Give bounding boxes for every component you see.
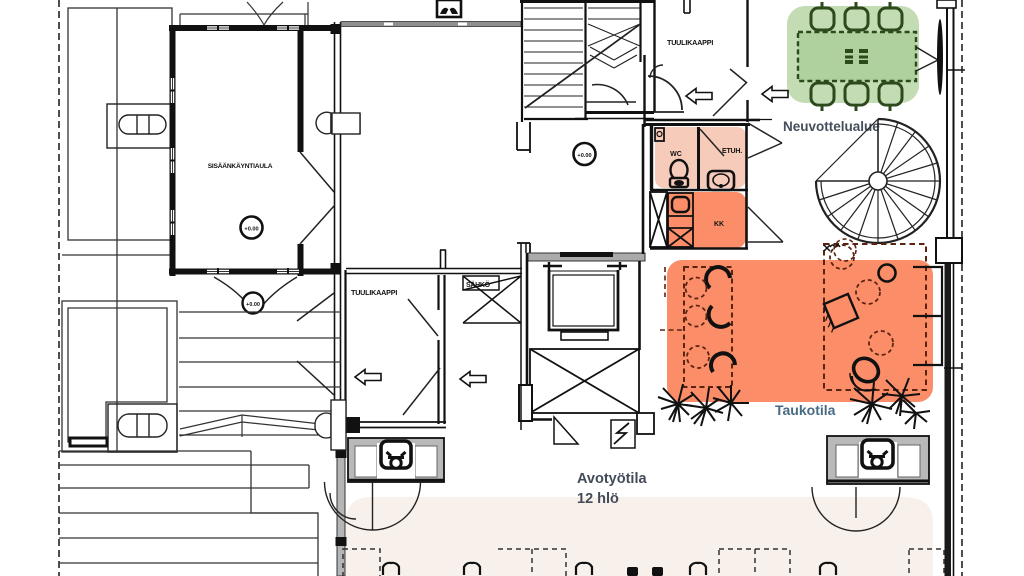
svg-text:+0.00: +0.00 (246, 302, 260, 308)
svg-text:12 hlö: 12 hlö (577, 491, 619, 507)
svg-text:TUULIKAAPPI: TUULIKAAPPI (667, 38, 713, 47)
svg-text:TUULIKAAPPI: TUULIKAAPPI (351, 288, 397, 297)
svg-text:ETUH.: ETUH. (722, 148, 742, 155)
svg-text:KK: KK (714, 221, 724, 228)
svg-text:Avotyötila: Avotyötila (577, 471, 647, 487)
svg-text:SISÄÄNKÄYNTIAULA: SISÄÄNKÄYNTIAULA (208, 162, 273, 170)
svg-text:+0.00: +0.00 (244, 227, 258, 233)
svg-text:WC: WC (670, 151, 682, 158)
svg-text:Taukotila: Taukotila (775, 402, 836, 418)
svg-text:+0.00: +0.00 (577, 153, 591, 159)
svg-text:SÄHKÖ: SÄHKÖ (466, 280, 491, 289)
